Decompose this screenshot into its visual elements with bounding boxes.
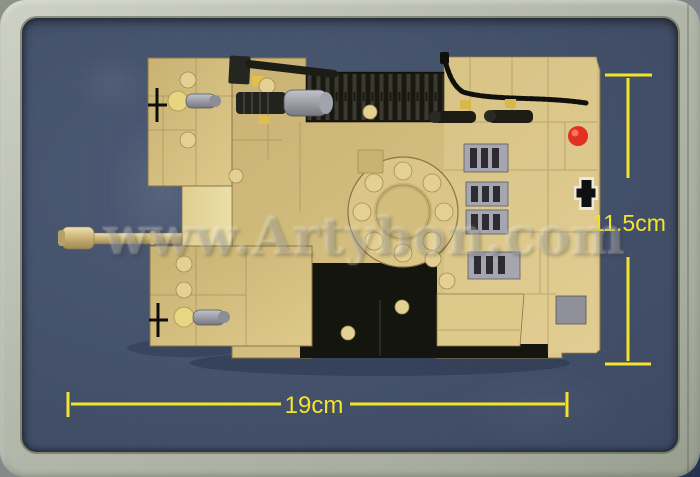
fender-lower-left [149, 246, 312, 346]
red-dot-marker [568, 126, 588, 146]
fender-upper-left [148, 58, 232, 186]
tank-top-view-illustration: 19cm 11.5cm [0, 0, 700, 477]
height-label: 11.5cm [592, 210, 666, 236]
width-label: 19cm [285, 392, 344, 419]
gray-brick [556, 296, 586, 324]
hatch-tile [358, 150, 383, 173]
muzzle-brake [62, 227, 94, 249]
dimension-height: 11.5cm [592, 75, 666, 364]
dimension-width: 19cm [68, 392, 567, 419]
product-photo: 19cm 11.5cm www.Artybon.com [0, 0, 700, 477]
